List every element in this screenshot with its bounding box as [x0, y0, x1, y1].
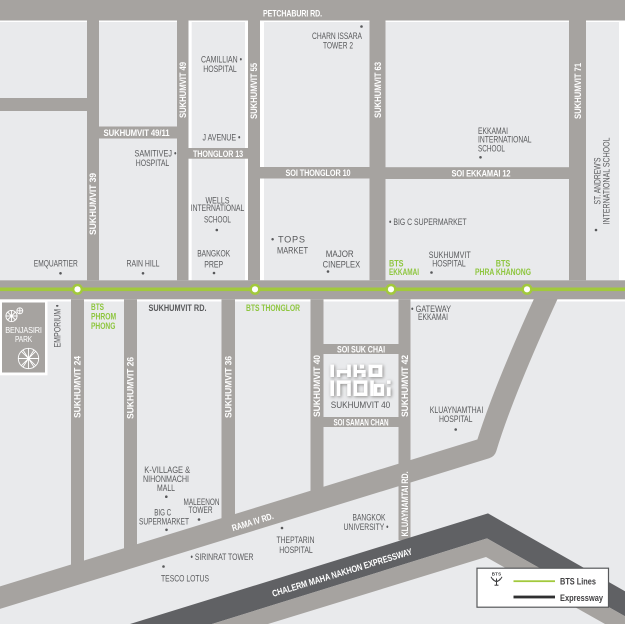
svg-text:KLUAYNAMTAI RD.: KLUAYNAMTAI RD. — [400, 472, 410, 537]
svg-text:BTS THONGLOR: BTS THONGLOR — [246, 303, 300, 313]
svg-text:SUKHUMVIT 49: SUKHUMVIT 49 — [178, 62, 188, 118]
svg-text:HOSPITAL: HOSPITAL — [439, 414, 473, 424]
svg-text:SUKHUMVIT 40: SUKHUMVIT 40 — [312, 355, 322, 417]
svg-text:UNIVERSITY •: UNIVERSITY • — [344, 522, 389, 532]
svg-text:• SIRINRAT TOWER: • SIRINRAT TOWER — [191, 552, 254, 562]
svg-text:BTS Lines: BTS Lines — [560, 576, 596, 587]
svg-text:BANGKOK: BANGKOK — [353, 513, 387, 523]
svg-text:PREP: PREP — [204, 260, 223, 270]
svg-text:SUKHUMVIT RD.: SUKHUMVIT RD. — [149, 303, 207, 313]
svg-text:PHRA KHANONG: PHRA KHANONG — [475, 267, 531, 277]
svg-text:EKKAMAI: EKKAMAI — [418, 312, 448, 322]
svg-text:SOI THONGLOR 10: SOI THONGLOR 10 — [286, 168, 351, 178]
svg-text:SOI EKKAMAI 12: SOI EKKAMAI 12 — [452, 169, 511, 179]
svg-text:BTS: BTS — [91, 302, 104, 312]
svg-text:SOI SUK CHAI: SOI SUK CHAI — [337, 344, 385, 354]
svg-text:TOWER: TOWER — [189, 505, 213, 515]
svg-text:TOWER 2: TOWER 2 — [323, 40, 353, 50]
svg-text:MAJOR: MAJOR — [326, 249, 354, 259]
svg-text:HOSPITAL: HOSPITAL — [203, 64, 237, 74]
svg-text:SUKHUMVIT 36: SUKHUMVIT 36 — [224, 356, 234, 418]
svg-text:SUKHUMVIT 26: SUKHUMVIT 26 — [126, 357, 136, 419]
svg-text:SUKHUMVIT 55: SUKHUMVIT 55 — [249, 63, 259, 119]
svg-text:EMQUARTIER: EMQUARTIER — [34, 259, 78, 269]
svg-text:SOI SAMAN CHAN: SOI SAMAN CHAN — [334, 417, 389, 427]
svg-text:• TOPS: • TOPS — [271, 235, 305, 245]
svg-text:THONGLOR 13: THONGLOR 13 — [193, 149, 243, 159]
svg-text:SUPERMARKET: SUPERMARKET — [139, 516, 189, 526]
svg-text:PETCHABURI RD.: PETCHABURI RD. — [263, 9, 322, 19]
svg-text:SUKHUMVIT 24: SUKHUMVIT 24 — [73, 355, 83, 418]
svg-text:EKKAMAI: EKKAMAI — [389, 267, 419, 277]
svg-text:RAIN HILL: RAIN HILL — [127, 259, 160, 269]
svg-text:SUKHUMVIT 71: SUKHUMVIT 71 — [573, 63, 583, 119]
svg-text:CAMILLIAN •: CAMILLIAN • — [201, 54, 242, 64]
svg-text:SUKHUMVIT 39: SUKHUMVIT 39 — [88, 173, 98, 235]
svg-text:HOSPITAL: HOSPITAL — [136, 158, 170, 168]
svg-text:• BIG C SUPERMARKET: • BIG C SUPERMARKET — [389, 217, 467, 227]
svg-text:Expressway: Expressway — [560, 593, 604, 604]
svg-text:TESCO LOTUS: TESCO LOTUS — [161, 573, 209, 583]
svg-text:HOSPITAL: HOSPITAL — [279, 545, 313, 555]
svg-text:INTERNATIONAL: INTERNATIONAL — [191, 203, 245, 213]
svg-text:SUKHUMVIT 40: SUKHUMVIT 40 — [331, 400, 391, 410]
svg-text:HOSPITAL: HOSPITAL — [432, 259, 466, 269]
svg-text:SUKHUMVIT 49/11: SUKHUMVIT 49/11 — [104, 128, 170, 138]
svg-text:MALL: MALL — [157, 483, 175, 493]
svg-text:SCHOOL: SCHOOL — [478, 143, 505, 153]
svg-text:MARKET: MARKET — [277, 245, 308, 255]
svg-text:CINEPLEX: CINEPLEX — [323, 259, 361, 269]
svg-text:THEPTARIN: THEPTARIN — [277, 535, 315, 545]
svg-text:PARK: PARK — [15, 334, 33, 344]
svg-text:EMPORIUM •: EMPORIUM • — [53, 305, 63, 348]
svg-text:SCHOOL: SCHOOL — [204, 215, 231, 225]
svg-text:J AVENUE •: J AVENUE • — [203, 132, 241, 142]
svg-text:SUKHUMVIT 63: SUKHUMVIT 63 — [373, 62, 383, 118]
svg-text:SAMITIVEJ •: SAMITIVEJ • — [135, 149, 177, 159]
svg-text:PHONG: PHONG — [91, 321, 115, 331]
svg-text:BTS: BTS — [492, 572, 502, 578]
svg-text:SUKHUMVIT 42: SUKHUMVIT 42 — [400, 355, 410, 417]
svg-text:BANGKOK: BANGKOK — [197, 249, 231, 259]
